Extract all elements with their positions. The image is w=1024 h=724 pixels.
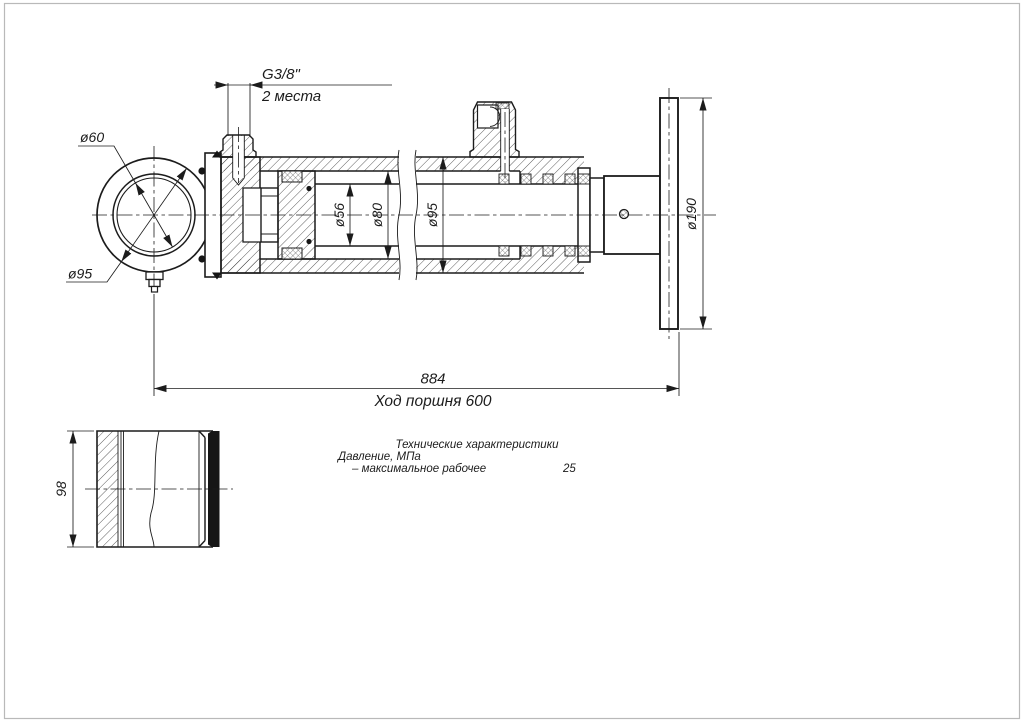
eye-bore-label: ø60 [80,129,104,145]
specs-block: Технические характеристики Давление, МПа… [336,439,576,475]
dimension-barrel: ø95 [424,157,443,273]
spec-pressure-group-label: Давление, МПа [336,451,421,463]
eye-outer-label: ø95 [68,266,92,282]
sleeve-width-label: 98 [53,481,69,497]
rod-diameter-label: ø56 [331,203,347,227]
bore-diameter-label: ø80 [369,203,385,227]
overall-length-label: 884 [420,371,445,388]
dimension-flange: ø190 [680,98,712,329]
dimension-port-thread: G3/8" 2 места [214,66,392,136]
spec-max-working-value: 25 [562,463,576,475]
grease-fitting [146,272,163,292]
port-thread-label: G3/8" [262,66,301,83]
drawing-page: G3/8" 2 места ø60 ø95 ø56 ø80 ø95 [0,0,1024,724]
dimension-overall-length: 884 Ход поршня 600 [154,294,679,410]
spec-max-working-label: – максимальное рабочее [351,463,486,475]
technical-drawing: G3/8" 2 места ø60 ø95 ø56 ø80 ø95 [0,0,1024,724]
piston-stroke-label: Ход поршня 600 [373,393,491,410]
centerlines [85,88,716,489]
main-view [97,98,678,329]
flange-diameter-label: ø190 [683,198,699,230]
port-places-label: 2 места [261,88,321,105]
specs-title: Технические характеристики [395,439,559,451]
screw-plug [620,210,629,219]
barrel-diameter-label: ø95 [424,203,440,227]
